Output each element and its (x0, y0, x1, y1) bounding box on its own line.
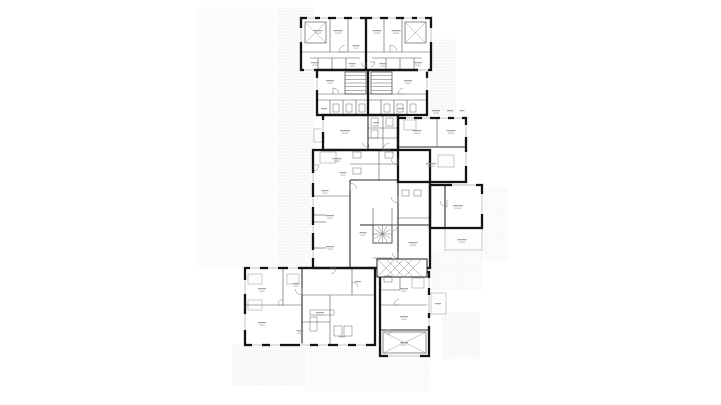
room-label-mark (354, 48, 359, 49)
room-label-mark (340, 130, 350, 131)
room-label-mark (322, 190, 329, 191)
grid-patch (482, 188, 508, 260)
room-label-mark (447, 130, 456, 131)
room-label-mark (314, 30, 323, 31)
room-label-mark (392, 30, 401, 31)
room-label-mark (321, 108, 327, 109)
room-label-mark (355, 281, 361, 282)
room-label-mark (339, 336, 345, 337)
room-label-mark (373, 30, 382, 31)
room-label-mark (380, 63, 387, 64)
furniture (438, 155, 454, 167)
room-label-mark (341, 175, 346, 176)
room-label-mark (432, 110, 440, 111)
room-label-mark (327, 83, 333, 84)
room-label-mark (327, 249, 333, 250)
room-label-mark (459, 242, 465, 243)
room-label-mark (258, 322, 266, 323)
grid-patch (430, 250, 482, 290)
room-label-mark (342, 133, 349, 134)
block-neck-fill (317, 70, 427, 115)
room-label-mark (258, 288, 266, 289)
room-label-mark (312, 65, 318, 66)
room-label-mark (413, 130, 422, 131)
furniture (320, 152, 336, 163)
room-label-mark (460, 110, 465, 111)
room-label-mark (400, 342, 408, 343)
room-label-mark (400, 316, 408, 317)
room-label-mark (315, 33, 321, 34)
grid-patch (233, 345, 305, 385)
room-label-mark (340, 172, 347, 173)
room-label-mark (326, 246, 334, 247)
room-label-mark (398, 108, 404, 109)
room-label-mark (453, 205, 463, 206)
floor-plan-page (0, 0, 721, 405)
room-label-mark (361, 235, 366, 236)
room-label-mark (409, 242, 418, 243)
room-label-mark (393, 33, 399, 34)
grid-patch (443, 313, 480, 358)
room-label-mark (455, 208, 462, 209)
room-label-mark (293, 283, 300, 284)
room-label-mark (435, 303, 441, 304)
room-label-mark (353, 45, 360, 46)
room-label-mark (426, 163, 436, 164)
room-label-mark (333, 158, 342, 159)
room-label-mark (335, 33, 341, 34)
room-label-mark (414, 62, 422, 63)
room-label-mark (360, 232, 367, 233)
block-mid-main-fill (313, 150, 430, 268)
room-label-mark (326, 215, 334, 216)
block-mid-topleft-fill (323, 115, 398, 150)
grid-patch (198, 8, 280, 268)
furniture (248, 274, 262, 284)
room-label-mark (401, 291, 407, 292)
room-label-mark (400, 288, 408, 289)
room-label-mark (415, 65, 421, 66)
furniture (412, 278, 424, 288)
room-label-mark (316, 312, 324, 313)
floor-plan-svg (0, 0, 721, 405)
room-label-mark (374, 33, 380, 34)
furniture (287, 274, 299, 284)
room-label-mark (311, 62, 319, 63)
room-label-mark (323, 193, 328, 194)
room-label-mark (294, 286, 299, 287)
room-label-mark (405, 83, 411, 84)
room-label-mark (428, 166, 435, 167)
room-label-mark (334, 161, 340, 162)
room-label-mark (458, 239, 467, 240)
room-label-mark (327, 218, 333, 219)
room-label-mark (373, 122, 379, 123)
room-label-mark (448, 133, 454, 134)
room-label-mark (447, 110, 453, 111)
block-lower-left-wing-fill (245, 268, 375, 345)
room-label-mark (401, 319, 407, 320)
room-label-mark (414, 133, 420, 134)
room-label-mark (381, 66, 386, 67)
room-label-mark (298, 333, 303, 334)
room-label-mark (349, 63, 356, 64)
room-label-mark (259, 291, 265, 292)
room-label-mark (401, 345, 407, 346)
room-label-mark (317, 315, 323, 316)
block-right-wing-fill (430, 185, 482, 228)
grid-patch (431, 40, 456, 117)
room-label-mark (259, 325, 265, 326)
room-label-mark (297, 330, 304, 331)
room-label-mark (326, 80, 334, 81)
furniture (404, 120, 416, 130)
room-label-mark (404, 80, 412, 81)
room-label-mark (410, 245, 416, 246)
room-label-mark (433, 113, 439, 114)
room-label-mark (334, 30, 343, 31)
room-label-mark (350, 66, 355, 67)
